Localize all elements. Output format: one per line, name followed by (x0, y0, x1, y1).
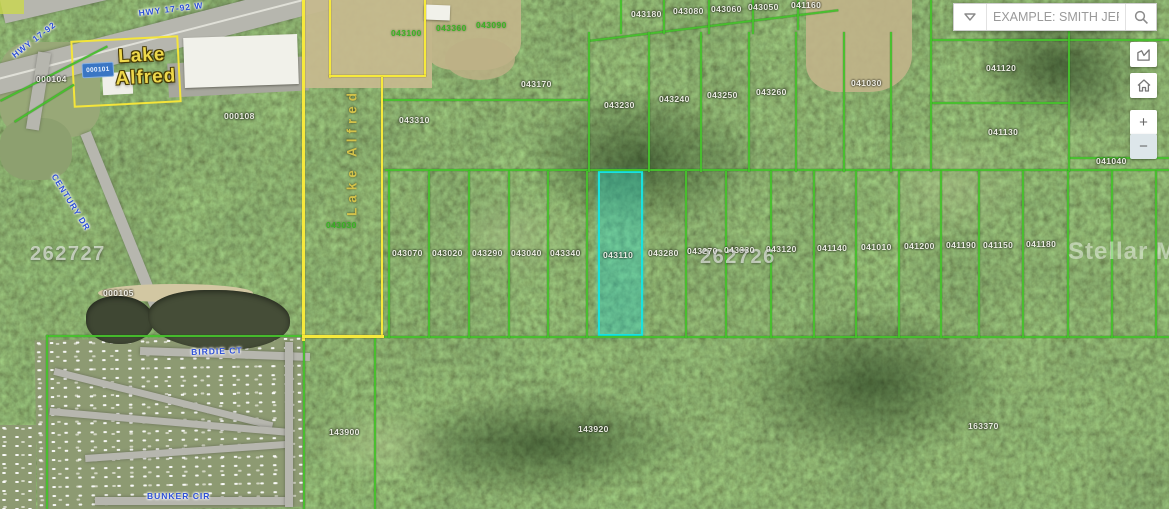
parcel-boundary-line (843, 32, 845, 172)
parcel-number-label: 043280 (648, 248, 679, 258)
parcel-number-label: 041130 (988, 127, 1018, 137)
parcel-boundary-line (978, 171, 980, 338)
road-name-label: CENTURY DR (50, 172, 93, 233)
sign-line-2: Alfred (115, 65, 177, 90)
road-name-label: BIRDIE CT (191, 345, 243, 357)
stellar-mls-watermark: Stellar MLS (1068, 238, 1169, 266)
measure-area-icon (1136, 48, 1151, 62)
parcel-number-label: 043170 (521, 79, 552, 89)
parcel-number-label: 041190 (946, 240, 976, 250)
parcel-boundary-line (388, 171, 390, 338)
zoom-in-button[interactable]: + (1130, 110, 1157, 135)
parcel-number-label: 041140 (817, 243, 847, 253)
subdivision-boundary-line (329, 0, 331, 78)
parcel-number-label: 043050 (748, 2, 779, 12)
road-name-label: HWY 17-92 (10, 20, 58, 60)
parcel-number-label: 041030 (851, 78, 882, 88)
subdivision-boundary-line (424, 0, 426, 76)
map-viewport[interactable]: 000101 Lake Alfred Lake Alfred 043180043… (0, 0, 1169, 509)
parcel-number-label: 041010 (861, 242, 892, 252)
sign-line-1: Lake (114, 43, 176, 68)
parcel-boundary-line (930, 0, 932, 172)
parcel-number-label: 000105 (103, 288, 134, 298)
home-icon (1136, 78, 1152, 93)
parcel-number-label: 000108 (224, 111, 255, 121)
subdivision-boundary-line (302, 335, 384, 338)
parcel-number-label: 043310 (399, 115, 430, 125)
home-button[interactable] (1130, 73, 1157, 98)
parcel-number-label: 043180 (631, 9, 662, 19)
subdivision-boundary-line (302, 0, 305, 341)
parcel-number-label: 043340 (550, 248, 581, 258)
lake-alfred-vertical-label: Lake Alfred (345, 88, 360, 216)
lake-alfred-sign-text: Lake Alfred (114, 43, 177, 90)
parcel-number-label: 043240 (659, 94, 690, 104)
parcel-boundary-line (588, 32, 590, 172)
parcel-boundary-line (930, 102, 1069, 104)
magnifier-icon (1134, 10, 1149, 25)
parcel-number-label: 043060 (711, 4, 742, 14)
parcel-boundary-line (663, 0, 665, 34)
section-number-label: 262727 (30, 243, 106, 266)
zoom-out-button[interactable]: − (1130, 134, 1157, 159)
parcel-boundary-line (700, 32, 702, 172)
parcel-number-label: 043090 (476, 20, 507, 30)
parcel-number-label: 000104 (36, 74, 67, 84)
search-bar (953, 3, 1157, 31)
parcel-boundary-line (940, 171, 942, 338)
parcel-boundary-line (898, 171, 900, 338)
parcel-number-label: 043250 (707, 90, 738, 100)
subdivision-boundary-line (381, 77, 383, 337)
caret-down-icon (964, 13, 976, 21)
parcel-number-label: 043110 (603, 250, 633, 260)
parcel-boundary-line (508, 171, 510, 338)
road-name-label: BUNKER CIR (147, 491, 210, 501)
parcel-number-label: 041180 (1026, 239, 1056, 249)
parcel-boundary-line (428, 171, 430, 338)
parcel-number-label: 043230 (604, 100, 635, 110)
parcel-boundary-line (303, 336, 1169, 338)
parcel-boundary-line (382, 99, 590, 101)
parcel-number-label: 041040 (1096, 156, 1127, 166)
parcel-boundary-line (648, 32, 650, 172)
measure-button[interactable] (1130, 42, 1157, 67)
parcel-boundary-line (795, 32, 797, 172)
section-number-label: 262726 (700, 246, 776, 269)
lake-alfred-sign-parcel: 000101 Lake Alfred (70, 35, 181, 108)
search-type-dropdown[interactable] (954, 4, 987, 30)
parcel-number-label: 043020 (432, 248, 463, 258)
parcel-number-label: 043080 (673, 6, 704, 16)
parcel-overlay: 000101 Lake Alfred Lake Alfred 043180043… (0, 0, 1169, 509)
parcel-boundary-line (813, 171, 815, 338)
search-button[interactable] (1125, 4, 1156, 30)
parcel-boundary-line (890, 32, 892, 172)
parcel-boundary-line (588, 9, 838, 42)
parcel-tag: 000101 (82, 62, 115, 79)
parcel-boundary-line (855, 171, 857, 338)
parcel-boundary-line (46, 335, 48, 509)
parcel-number-label: 163370 (968, 421, 999, 431)
parcel-number-label: 043040 (511, 248, 542, 258)
parcel-number-label: 043360 (436, 23, 467, 33)
parcel-boundary-line (620, 0, 622, 34)
parcel-number-label: 043030 (326, 220, 357, 230)
parcel-boundary-line (930, 39, 1169, 41)
road-name-label: HWY 17-92 W (138, 0, 204, 18)
parcel-number-label: 143920 (578, 424, 609, 434)
parcel-number-label: 143900 (329, 427, 360, 437)
parcel-boundary-line (374, 338, 376, 509)
parcel-boundary-line (708, 0, 710, 34)
parcel-number-label: 043100 (391, 28, 422, 38)
parcel-boundary-line (1022, 171, 1024, 338)
parcel-number-label: 041160 (791, 0, 821, 10)
parcel-number-label: 043260 (756, 87, 787, 97)
parcel-boundary-line (748, 32, 750, 172)
parcel-boundary-line (586, 171, 588, 338)
parcel-number-label: 043290 (472, 248, 503, 258)
parcel-boundary-line (385, 169, 1169, 171)
parcel-number-label: 041120 (986, 63, 1016, 73)
search-input[interactable] (987, 4, 1125, 30)
parcel-boundary-line (46, 335, 304, 337)
subdivision-boundary-line (329, 75, 426, 77)
parcel-boundary-line (303, 338, 305, 509)
parcel-boundary-line (547, 171, 549, 338)
parcel-number-label: 041150 (983, 240, 1013, 250)
parcel-number-label: 043070 (392, 248, 423, 258)
parcel-boundary-line (468, 171, 470, 338)
parcel-number-label: 041200 (904, 241, 935, 251)
